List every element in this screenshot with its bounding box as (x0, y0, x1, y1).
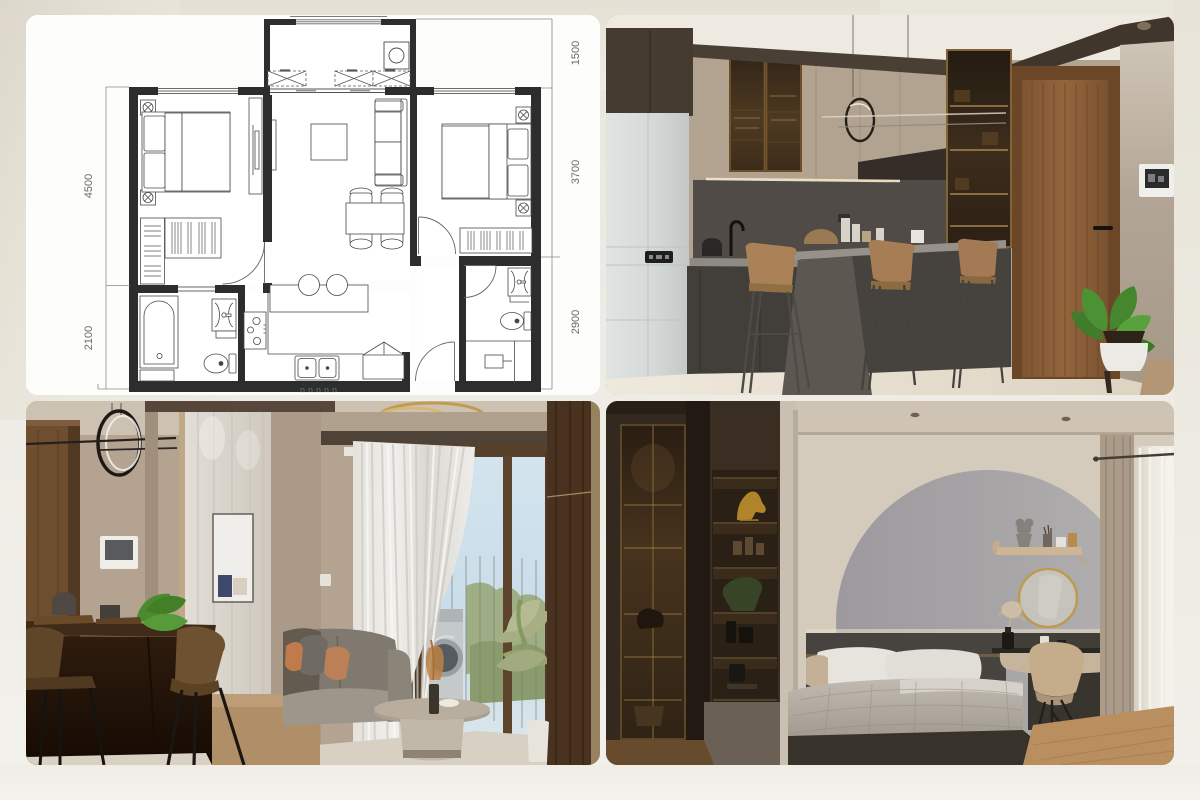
svg-text:3700: 3700 (570, 160, 582, 184)
svg-text:4500: 4500 (83, 174, 95, 198)
svg-text:1500: 1500 (570, 41, 582, 65)
svg-text:nnnnn: nnnnn (300, 385, 340, 395)
svg-text:2900: 2900 (570, 310, 582, 334)
svg-text:2100: 2100 (83, 326, 95, 350)
